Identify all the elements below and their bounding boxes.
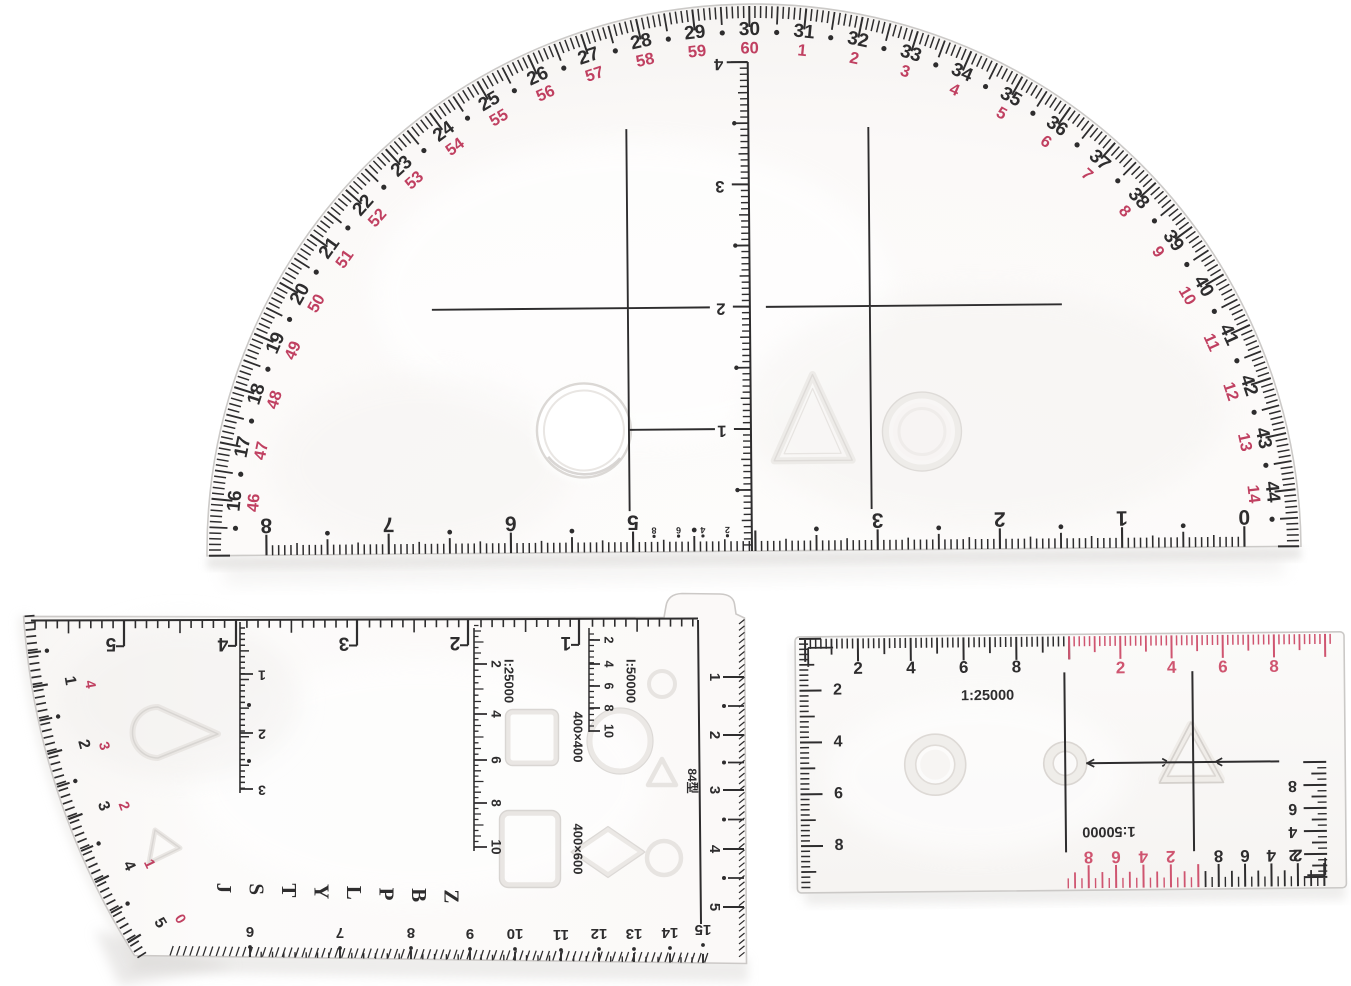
svg-text:I:50000: I:50000 <box>624 659 639 703</box>
svg-text:11: 11 <box>553 926 569 943</box>
svg-text:9: 9 <box>466 925 474 942</box>
svg-text:4: 4 <box>1138 847 1148 866</box>
svg-text:6: 6 <box>834 785 843 802</box>
svg-text:84型: 84型 <box>685 768 700 793</box>
svg-text:6: 6 <box>488 756 503 764</box>
svg-text:8: 8 <box>602 705 616 712</box>
svg-text:7: 7 <box>336 924 344 941</box>
svg-text:1:25000: 1:25000 <box>961 688 1014 705</box>
svg-text:5: 5 <box>105 633 116 654</box>
svg-text:6: 6 <box>1240 846 1250 865</box>
svg-text:2: 2 <box>602 637 616 644</box>
svg-text:0: 0 <box>1238 505 1250 528</box>
svg-text:10: 10 <box>602 724 616 738</box>
svg-text:1: 1 <box>258 667 266 683</box>
svg-text:15: 15 <box>695 921 712 938</box>
svg-text:13: 13 <box>626 925 643 942</box>
svg-text:3: 3 <box>706 786 723 794</box>
svg-text:4: 4 <box>833 733 842 750</box>
svg-text:2: 2 <box>1116 658 1126 677</box>
svg-text:47: 47 <box>251 440 272 462</box>
svg-text:16: 16 <box>223 489 246 512</box>
svg-text:8: 8 <box>407 924 415 941</box>
svg-text:4: 4 <box>1266 846 1276 865</box>
svg-text:2: 2 <box>1288 846 1297 863</box>
svg-text:8: 8 <box>651 525 656 535</box>
svg-text:4: 4 <box>1167 658 1177 677</box>
svg-text:4: 4 <box>1288 823 1297 840</box>
svg-text:4: 4 <box>906 658 916 677</box>
svg-text:8: 8 <box>1012 657 1022 676</box>
svg-text:1: 1 <box>1116 506 1128 529</box>
svg-text:J: J <box>212 883 236 894</box>
svg-text:6: 6 <box>1288 800 1297 817</box>
svg-text:30: 30 <box>739 19 760 40</box>
svg-text:6: 6 <box>1111 847 1121 866</box>
svg-text:2: 2 <box>716 299 725 317</box>
svg-text:4: 4 <box>217 633 228 654</box>
svg-text:4: 4 <box>706 845 723 854</box>
svg-text:4: 4 <box>602 661 616 668</box>
svg-text:2: 2 <box>725 525 730 535</box>
svg-text:6: 6 <box>676 525 681 535</box>
svg-text:2: 2 <box>450 632 461 653</box>
svg-text:10: 10 <box>507 925 524 942</box>
svg-text:1: 1 <box>706 673 723 681</box>
svg-text:7: 7 <box>383 513 395 536</box>
svg-text:8: 8 <box>488 799 503 807</box>
svg-text:1: 1 <box>560 632 571 653</box>
svg-text:8: 8 <box>1288 777 1297 794</box>
svg-text:14: 14 <box>1243 484 1263 505</box>
svg-text:P: P <box>375 888 399 901</box>
svg-text:10: 10 <box>488 839 503 854</box>
svg-text:8: 8 <box>260 514 272 537</box>
svg-text:4: 4 <box>700 525 705 535</box>
svg-text:6: 6 <box>602 683 616 690</box>
svg-text:2: 2 <box>853 659 863 678</box>
svg-text:59: 59 <box>687 42 707 62</box>
svg-text:31: 31 <box>792 20 815 43</box>
svg-text:14: 14 <box>661 924 678 941</box>
svg-text:2: 2 <box>258 726 266 742</box>
svg-text:60: 60 <box>740 39 759 57</box>
svg-text:Z: Z <box>440 889 464 903</box>
svg-text:6: 6 <box>505 512 517 535</box>
svg-text:2: 2 <box>833 682 842 699</box>
svg-text:T: T <box>277 883 301 897</box>
svg-text:2: 2 <box>706 731 723 739</box>
svg-text:6: 6 <box>959 658 969 677</box>
svg-text:B: B <box>407 888 431 902</box>
svg-text:I:25000: I:25000 <box>502 659 517 703</box>
svg-text:4: 4 <box>488 710 503 718</box>
svg-text:1:50000: 1:50000 <box>1082 823 1135 840</box>
svg-text:32: 32 <box>845 28 870 53</box>
svg-text:2: 2 <box>1166 847 1176 866</box>
svg-text:2: 2 <box>488 660 503 668</box>
svg-text:3: 3 <box>872 508 884 531</box>
svg-text:L: L <box>342 886 366 900</box>
svg-text:5: 5 <box>706 903 723 911</box>
svg-text:4: 4 <box>713 55 723 73</box>
svg-text:S: S <box>245 883 269 895</box>
svg-text:46: 46 <box>244 493 264 513</box>
svg-text:2: 2 <box>994 507 1006 530</box>
svg-text:12: 12 <box>591 925 608 942</box>
svg-text:Y: Y <box>310 884 334 899</box>
svg-text:8: 8 <box>834 837 843 854</box>
svg-text:400×600: 400×600 <box>571 824 586 875</box>
svg-text:3: 3 <box>715 177 724 195</box>
svg-text:6: 6 <box>1218 657 1228 676</box>
svg-text:8: 8 <box>1084 848 1094 867</box>
svg-text:5: 5 <box>627 510 639 533</box>
svg-text:8: 8 <box>1269 657 1279 676</box>
svg-text:6: 6 <box>246 923 254 940</box>
svg-text:3: 3 <box>339 632 350 653</box>
svg-text:1: 1 <box>797 41 808 60</box>
svg-text:1: 1 <box>717 422 726 440</box>
svg-text:8: 8 <box>1214 846 1224 865</box>
svg-text:400×400: 400×400 <box>571 712 586 763</box>
svg-text:3: 3 <box>258 782 266 798</box>
